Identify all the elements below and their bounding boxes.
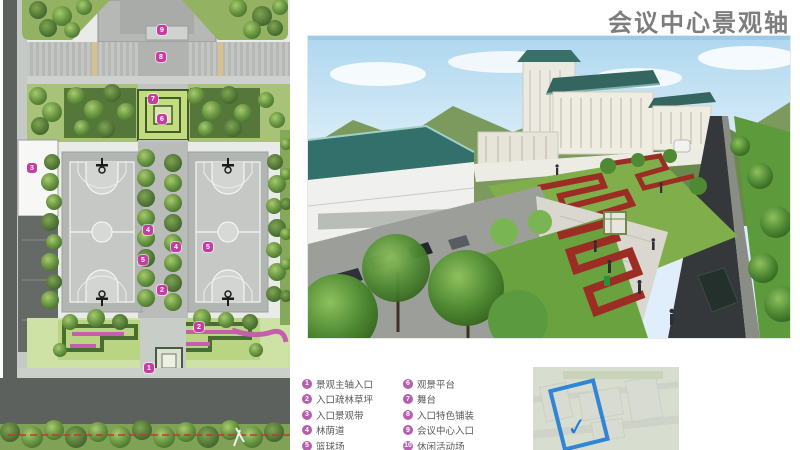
slide: 987634455221 会议中心景观轴 [0,0,800,450]
legend-item: 9会议中心入口 [403,423,503,439]
legend-number-badge: 9 [403,425,413,435]
legend-item: 2入口疏林草坪 [302,392,402,408]
legend-number-badge: 7 [403,394,413,404]
legend-label: 入口特色铺装 [417,408,474,422]
page-title: 会议中心景观轴 [608,3,790,38]
location-minimap: ✓ [533,367,679,450]
plan-marker: 8 [156,52,166,62]
site-plan: 987634455221 [0,0,290,450]
legend-item: 3入口景观带 [302,407,402,423]
legend-label: 入口景观带 [316,408,364,422]
legend-label: 休闲活动场 [417,439,465,450]
legend-number-badge: 8 [403,410,413,420]
plan-marker: 6 [157,114,167,124]
legend-number-badge: 3 [302,410,312,420]
legend-label: 会议中心入口 [417,423,474,437]
plan-marker: 1 [144,363,154,373]
legend-number-badge: 5 [302,441,312,450]
legend-column-2: 6观景平台7舞台8入口特色铺装9会议中心入口10休闲活动场 [403,376,503,450]
legend-number-badge: 1 [302,379,312,389]
legend-number-badge: 4 [302,425,312,435]
legend-label: 篮球场 [316,439,345,450]
rendering-drawing [308,36,790,338]
location-checkmark: ✓ [565,412,589,444]
legend-label: 林荫道 [316,423,345,437]
legend-label: 景观主轴入口 [316,377,373,391]
legend-item: 8入口特色铺装 [403,407,503,423]
plan-marker: 9 [157,25,167,35]
legend-number-badge: 10 [403,441,413,450]
plan-marker: 4 [143,225,153,235]
legend-item: 7舞台 [403,392,503,408]
plan-marker: 5 [138,255,148,265]
perspective-rendering [308,36,790,338]
plan-marker: 2 [194,322,204,332]
legend-label: 观景平台 [417,377,455,391]
plan-marker: 7 [148,94,158,104]
legend-number-badge: 2 [302,394,312,404]
legend-item: 4林荫道 [302,423,402,439]
plan-marker: 5 [203,242,213,252]
legend-item: 1景观主轴入口 [302,376,402,392]
legend-item: 10休闲活动场 [403,438,503,450]
plan-marker: 4 [171,242,181,252]
legend-item: 5篮球场 [302,438,402,450]
legend-number-badge: 6 [403,379,413,389]
plan-marker: 3 [27,163,37,173]
legend-label: 入口疏林草坪 [316,392,373,406]
legend-column-1: 1景观主轴入口2入口疏林草坪3入口景观带4林荫道5篮球场 [302,376,402,450]
legend-label: 舞台 [417,392,436,406]
plan-marker: 2 [157,285,167,295]
legend-item: 6观景平台 [403,376,503,392]
